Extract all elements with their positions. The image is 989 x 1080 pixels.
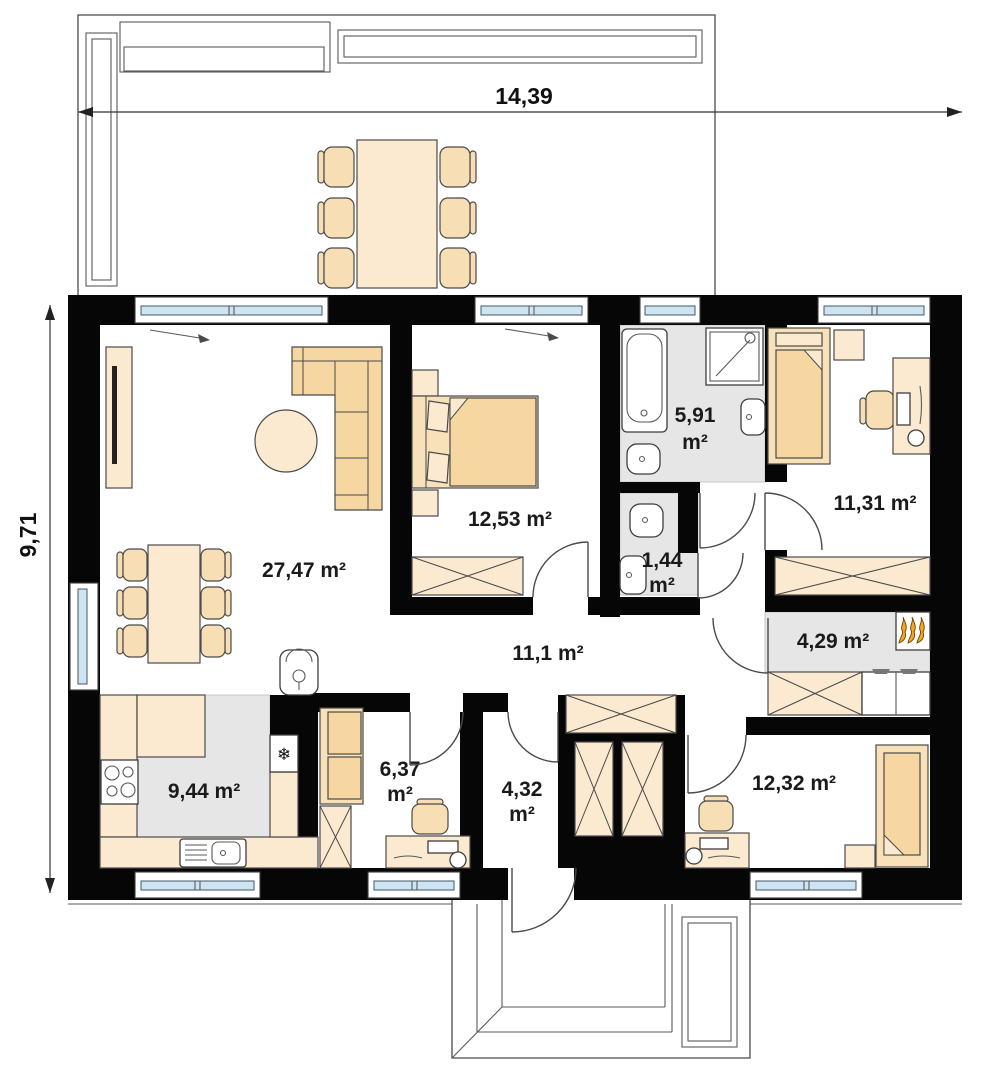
terrace-dining-set: [318, 140, 476, 288]
wc-area-value: 1,44: [642, 549, 683, 572]
desk-chair: [412, 804, 448, 834]
utility-cabinets: [862, 669, 930, 715]
kitchen-counter-right: [270, 772, 298, 837]
window-bedroom-bottom: [750, 872, 862, 898]
floor-plan: 14,39 9,71: [0, 0, 989, 1080]
dimension-width-label: 14,39: [495, 83, 553, 109]
bedroom-right-area-label: 11,31 m²: [834, 492, 917, 515]
bathroom-area-value: 5,91: [675, 404, 716, 427]
room-office: 6,37 m²: [320, 708, 470, 868]
porch: [68, 900, 962, 1058]
living-area-label: 27,47 m²: [262, 559, 346, 582]
bedroom-bottom-area-label: 12,32 m²: [752, 772, 836, 795]
daybed: [320, 708, 363, 804]
utility-wardrobe: [768, 672, 862, 715]
bathroom-sink: [741, 399, 765, 435]
fireplace: [896, 612, 930, 650]
dining-chair: [201, 625, 225, 657]
fridge: ❄: [270, 735, 298, 772]
tv-cabinet: [106, 347, 132, 488]
sliding-door-arrow-living: [150, 330, 210, 343]
coffee-table: [255, 410, 317, 472]
shower: [706, 328, 763, 385]
wc-toilet: [630, 504, 663, 537]
porch-outline: [452, 900, 750, 1058]
kitchen-counter-corner: [137, 695, 205, 757]
window-office: [368, 872, 460, 898]
sliding-door-arrow-bedroom: [505, 329, 559, 341]
room-bedroom-right: 11,31 m²: [768, 328, 930, 595]
entry-area-value: 4,32: [502, 778, 543, 801]
terrace-chair: [440, 147, 470, 187]
window-kitchen: [135, 872, 260, 898]
dining-chair: [201, 549, 225, 581]
desk-chair: [866, 391, 894, 429]
chair-back: [318, 252, 324, 284]
desk-lamp: [450, 852, 466, 868]
bedroom-left-area-label: 12,53 m²: [468, 508, 552, 531]
side-table: [834, 330, 864, 360]
terrace-table: [357, 140, 437, 288]
entry-wardrobe: [575, 742, 613, 836]
appliance-knob: [872, 669, 890, 674]
chair-back: [225, 590, 231, 616]
desk-area: [685, 796, 749, 868]
window-living-top: [135, 297, 328, 323]
kitchen-area-label: 9,44 m²: [168, 780, 240, 803]
terrace-planter: [86, 33, 117, 286]
dining-chair: [123, 549, 147, 581]
chair-back: [470, 202, 476, 234]
side-table: [845, 845, 875, 868]
appliance-knob: [900, 669, 918, 674]
chair-back: [470, 151, 476, 183]
dimension-height: 9,71: [15, 305, 55, 893]
door-bedroom-bottom: [688, 735, 746, 793]
office-area-unit: m²: [387, 783, 413, 806]
window-bathroom: [640, 297, 700, 323]
chair-back: [117, 590, 123, 616]
monitor: [700, 838, 728, 849]
chair-back: [117, 552, 123, 578]
pillow: [427, 401, 449, 432]
pillow: [776, 333, 822, 346]
wardrobe: [412, 557, 523, 595]
door-entry-inner: [508, 712, 558, 762]
wardrobe: [320, 806, 351, 868]
terrace-chair: [440, 198, 470, 238]
pergola-beam-2-inner: [344, 36, 696, 57]
terrace-chair: [324, 147, 354, 187]
door-utility: [713, 618, 768, 673]
dining-table: [148, 545, 200, 663]
room-bedroom-bottom: 12,32 m²: [685, 745, 928, 868]
pergola-beam-inner: [124, 47, 324, 71]
terrace-chair: [324, 248, 354, 288]
room-entry: 4,32 m²: [502, 778, 543, 826]
desk-area: [386, 799, 470, 868]
room-bedroom-left: 12,53 m²: [412, 370, 552, 595]
chair-back: [225, 628, 231, 654]
door-bathroom: [700, 493, 755, 548]
chair-back: [860, 398, 866, 424]
dimension-height-label: 9,71: [15, 512, 41, 557]
chair-back: [318, 151, 324, 183]
desk-lamp: [908, 430, 924, 446]
desk-chair: [699, 801, 733, 831]
arrow-up-icon: [45, 305, 55, 320]
pillow: [427, 452, 449, 483]
porch-planter: [682, 917, 737, 1047]
arrow-down-icon: [45, 878, 55, 893]
desk-lamp: [686, 848, 702, 864]
monitor: [428, 841, 458, 853]
dining-set: [117, 545, 231, 663]
kitchen-sink: [180, 839, 246, 867]
bathroom-area-unit: m²: [682, 431, 708, 454]
hall-area-label: 11,1 m²: [512, 642, 583, 665]
pergola-beam-2: [338, 30, 702, 63]
door-wc: [698, 553, 743, 598]
dining-chair: [123, 587, 147, 619]
terrace-chair: [440, 248, 470, 288]
chair-back: [225, 552, 231, 578]
office-area-value: 6,37: [380, 758, 421, 781]
wc-area-unit: m²: [649, 574, 675, 597]
terrace: [78, 15, 715, 295]
wardrobe: [775, 557, 930, 595]
dining-chair: [123, 625, 147, 657]
bedroom-wardrobe: [622, 742, 663, 836]
snowflake-icon: ❄: [277, 745, 291, 764]
chair-back: [117, 628, 123, 654]
hall-wardrobe: [566, 695, 676, 733]
porch-planter-inner: [688, 923, 731, 1041]
arrow-right-icon: [947, 107, 962, 117]
chair-back: [318, 202, 324, 234]
stove: [101, 760, 138, 804]
monitor: [897, 393, 910, 425]
room-hall: 11,1 m²: [512, 642, 583, 665]
entry-area-unit: m²: [509, 803, 535, 826]
dimension-width: 14,39: [78, 83, 962, 117]
window-bedroom-left: [475, 297, 588, 323]
nightstand: [412, 490, 438, 516]
chair-back: [470, 252, 476, 284]
tv-icon: [112, 366, 117, 464]
bed-blanket: [776, 350, 822, 458]
dining-chair: [201, 587, 225, 619]
terrace-planter-inner: [92, 39, 111, 280]
entry-door-opening: [508, 868, 574, 900]
nightstand: [412, 370, 438, 396]
floor-plan-drawing: 14,39 9,71: [0, 0, 989, 1080]
desk-area: [860, 358, 930, 454]
window-bedroom-right: [818, 297, 930, 323]
door-bedroom-right: [765, 493, 822, 550]
bed-blanket: [450, 398, 536, 486]
bathtub: [622, 329, 667, 432]
door-bedroom-left: [533, 542, 588, 597]
toilet: [627, 444, 660, 474]
armchair: [280, 649, 318, 695]
room-living: 27,47 m²: [106, 347, 382, 695]
terrace-chair: [324, 198, 354, 238]
window-living-left: [70, 583, 98, 690]
utility-area-label: 4,29 m²: [797, 630, 869, 653]
